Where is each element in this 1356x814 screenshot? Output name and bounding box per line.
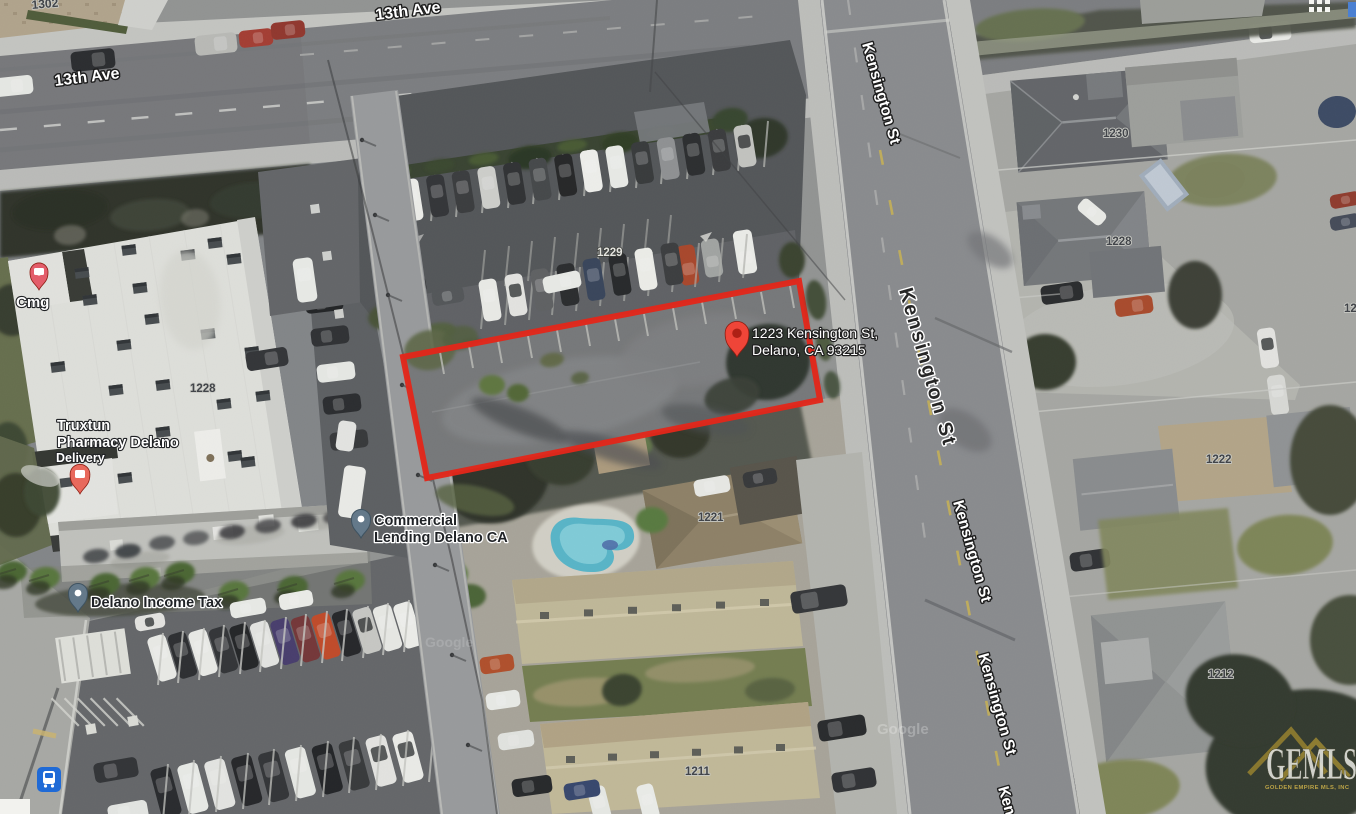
svg-text:1211: 1211 xyxy=(685,766,711,778)
svg-text:Pharmacy Delano: Pharmacy Delano xyxy=(57,435,179,451)
svg-text:1228: 1228 xyxy=(1106,236,1132,248)
svg-text:1212: 1212 xyxy=(1208,669,1234,681)
svg-text:1222: 1222 xyxy=(1206,454,1232,466)
svg-text:Delano, CA 93215: Delano, CA 93215 xyxy=(752,342,866,358)
svg-text:Delano Income Tax: Delano Income Tax xyxy=(91,595,222,611)
svg-text:1229: 1229 xyxy=(597,247,623,259)
svg-text:1230: 1230 xyxy=(1103,128,1129,140)
svg-text:Google: Google xyxy=(425,634,473,650)
svg-text:Cmg: Cmg xyxy=(16,294,49,311)
svg-text:Delivery: Delivery xyxy=(56,451,105,465)
svg-text:122: 122 xyxy=(1344,303,1356,315)
svg-text:GOLDEN EMPIRE MLS, INC: GOLDEN EMPIRE MLS, INC xyxy=(1265,785,1350,791)
svg-text:1223 Kensington St,: 1223 Kensington St, xyxy=(752,325,878,341)
svg-text:Lending Delano CA: Lending Delano CA xyxy=(374,530,508,546)
svg-text:1221: 1221 xyxy=(698,512,724,524)
svg-text:Truxtun: Truxtun xyxy=(57,418,110,434)
svg-text:1228: 1228 xyxy=(190,383,216,395)
svg-text:GEMLS: GEMLS xyxy=(1266,740,1356,789)
svg-text:Google: Google xyxy=(877,721,929,738)
svg-text:Commercial: Commercial xyxy=(374,513,457,529)
